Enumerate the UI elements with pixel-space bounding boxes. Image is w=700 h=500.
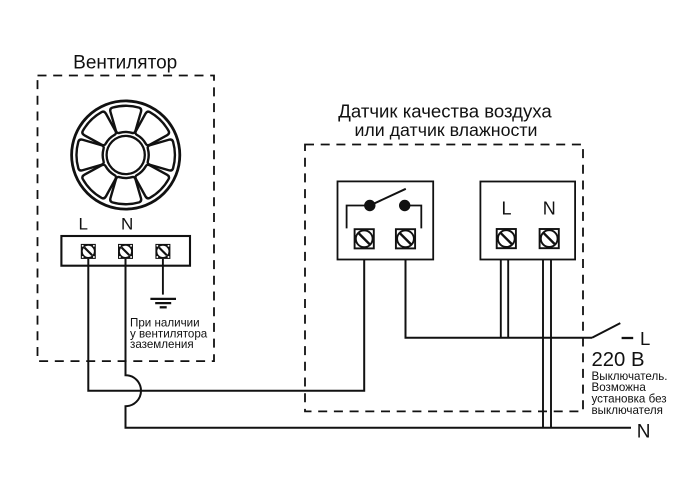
svg-text:N: N: [637, 422, 651, 443]
svg-text:N: N: [543, 198, 556, 218]
svg-text:Датчик качества воздуха: Датчик качества воздуха: [338, 101, 552, 122]
svg-text:L: L: [78, 214, 87, 233]
svg-text:или датчик влажности: или датчик влажности: [355, 120, 538, 140]
svg-text:выключателя: выключателя: [592, 404, 663, 417]
svg-text:Вентилятор: Вентилятор: [73, 52, 177, 73]
svg-text:220 В: 220 В: [592, 349, 645, 371]
svg-text:L: L: [501, 198, 511, 218]
svg-text:N: N: [121, 214, 133, 233]
svg-text:L: L: [640, 328, 650, 349]
svg-text:заземления: заземления: [130, 338, 194, 351]
